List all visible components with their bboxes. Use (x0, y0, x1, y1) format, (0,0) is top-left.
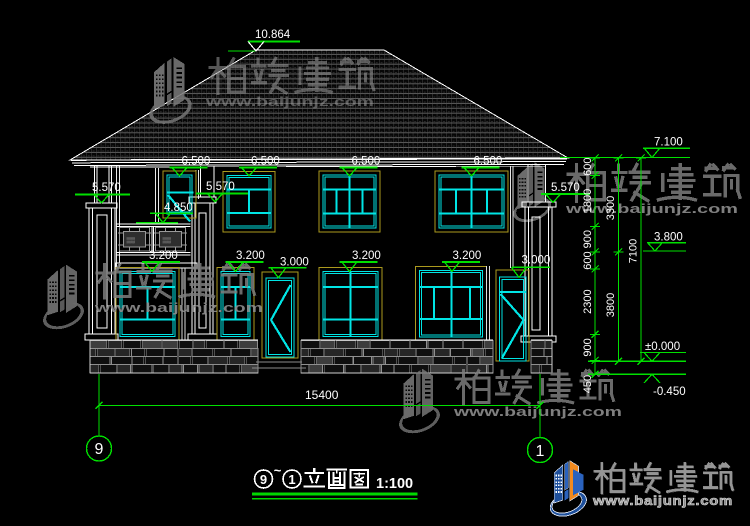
svg-text:5.570: 5.570 (551, 182, 580, 194)
svg-text:450: 450 (582, 375, 594, 393)
svg-text:9: 9 (95, 441, 104, 458)
svg-text:3.200: 3.200 (236, 250, 265, 262)
svg-text:3800: 3800 (605, 293, 617, 317)
svg-text:10.864: 10.864 (255, 29, 291, 41)
svg-text:900: 900 (582, 230, 594, 248)
svg-text:3.200: 3.200 (352, 250, 381, 262)
svg-text:1: 1 (288, 472, 295, 487)
svg-text:6.500: 6.500 (352, 156, 381, 168)
svg-text:6.500: 6.500 (182, 156, 211, 168)
svg-text:www.baijunjz.com: www.baijunjz.com (93, 301, 263, 315)
svg-text:3.800: 3.800 (654, 232, 683, 244)
svg-text:3.000: 3.000 (522, 255, 551, 267)
svg-text:7.100: 7.100 (654, 137, 683, 149)
svg-text:▒▒: ▒▒ (127, 237, 136, 244)
svg-text:3.000: 3.000 (280, 257, 309, 269)
svg-text:15400: 15400 (305, 388, 339, 402)
svg-text:1: 1 (536, 443, 545, 460)
svg-text:6.500: 6.500 (474, 156, 503, 168)
svg-text:9: 9 (260, 472, 267, 487)
svg-text:5.570: 5.570 (92, 182, 121, 194)
svg-text:5.570: 5.570 (206, 181, 235, 193)
svg-text:3.200: 3.200 (453, 250, 482, 262)
svg-text:4.850: 4.850 (164, 202, 193, 214)
svg-text:6.500: 6.500 (251, 156, 280, 168)
svg-text:3300: 3300 (605, 196, 617, 220)
svg-text:2300: 2300 (582, 289, 594, 313)
svg-text:600: 600 (582, 158, 594, 176)
svg-text:▒▒: ▒▒ (163, 237, 172, 244)
svg-text:±0.000: ±0.000 (645, 341, 680, 353)
svg-text:1:100: 1:100 (376, 476, 413, 492)
svg-text:7100: 7100 (628, 239, 640, 263)
svg-text:600: 600 (582, 251, 594, 269)
svg-text:www.baijunjz.com: www.baijunjz.com (204, 95, 374, 109)
svg-text:3.200: 3.200 (149, 250, 178, 262)
svg-text:1800: 1800 (582, 189, 594, 213)
svg-text:www.baijunjz.com: www.baijunjz.com (592, 494, 733, 508)
svg-text:~: ~ (274, 463, 282, 478)
svg-text:www.baijunjz.com: www.baijunjz.com (452, 405, 622, 419)
svg-text:900: 900 (582, 338, 594, 356)
svg-text:-0.450: -0.450 (653, 386, 686, 398)
